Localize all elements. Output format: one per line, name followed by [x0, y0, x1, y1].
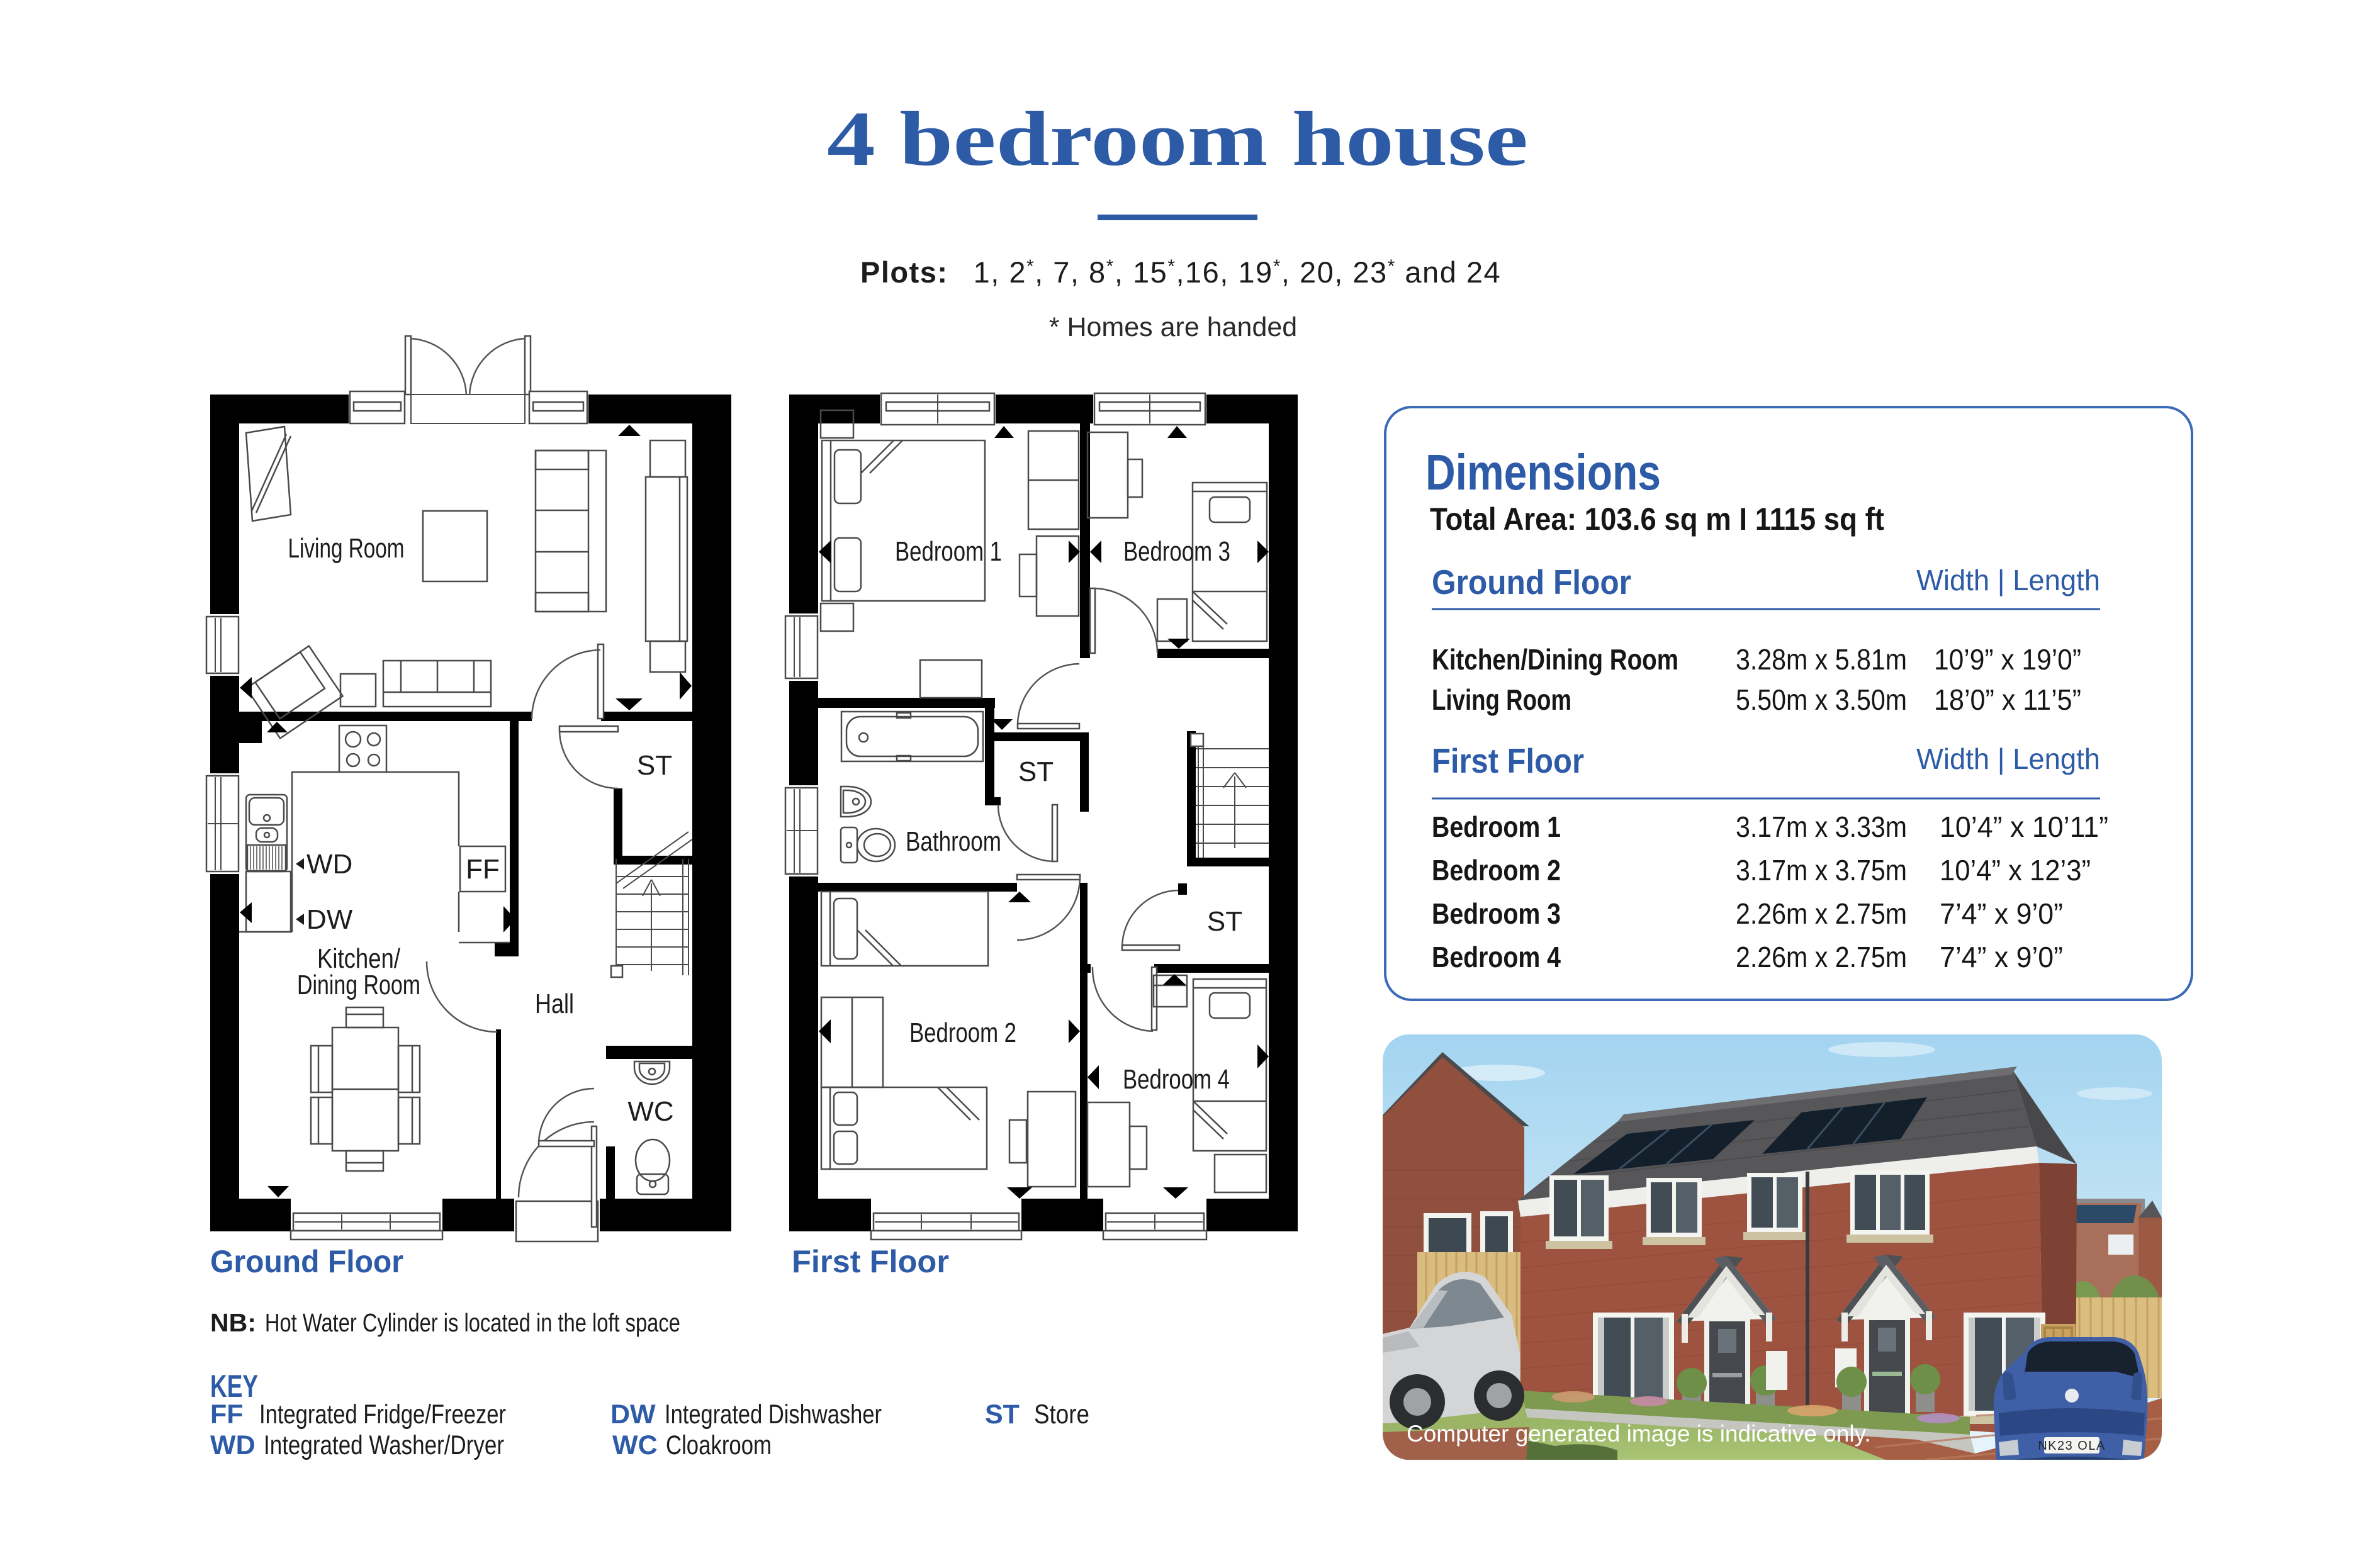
svg-text:First Floor: First Floor	[1432, 741, 1584, 780]
svg-text:ST: ST	[637, 750, 672, 781]
svg-text:Computer generated image is in: Computer generated image is indicative o…	[1407, 1421, 1871, 1447]
svg-text:10’4” x 12’3”: 10’4” x 12’3”	[1940, 854, 2091, 887]
svg-text:Bathroom: Bathroom	[906, 826, 1001, 857]
svg-text:Cloakroom: Cloakroom	[666, 1430, 772, 1460]
svg-text:Bedroom 1: Bedroom 1	[895, 536, 1002, 567]
svg-text:Integrated Dishwasher: Integrated Dishwasher	[665, 1399, 882, 1430]
svg-text:Bedroom 4: Bedroom 4	[1432, 941, 1561, 973]
svg-text:Total Area: 103.6 sq m I 1115: Total Area: 103.6 sq m I 1115 sq ft	[1430, 501, 1884, 537]
svg-text:Bedroom 2: Bedroom 2	[1432, 854, 1561, 887]
svg-text:Ground Floor: Ground Floor	[1432, 563, 1631, 602]
svg-text:ST: ST	[1018, 756, 1054, 787]
svg-text:Bedroom 2: Bedroom 2	[909, 1017, 1016, 1048]
svg-text:* Homes are handed: * Homes are handed	[1049, 312, 1297, 342]
svg-text:2.26m x 2.75m: 2.26m x 2.75m	[1736, 897, 1907, 930]
svg-text:ST: ST	[1207, 906, 1242, 937]
svg-text:18’0” x 11’5”: 18’0” x 11’5”	[1934, 683, 2081, 716]
svg-text:10’9” x 19’0”: 10’9” x 19’0”	[1934, 643, 2081, 676]
svg-text:NB:Hot Water Cylinder is locat: NB:Hot Water Cylinder is located in the …	[210, 1308, 680, 1337]
svg-text:Width | Length: Width | Length	[1916, 742, 2100, 775]
svg-text:5.50m x 3.50m: 5.50m x 3.50m	[1736, 683, 1907, 716]
svg-text:Bedroom 1: Bedroom 1	[1432, 810, 1561, 843]
svg-text:FF: FF	[210, 1399, 244, 1430]
svg-text:Living Room: Living Room	[1432, 683, 1571, 716]
svg-text:Bedroom 4: Bedroom 4	[1123, 1064, 1230, 1095]
svg-text:3.28m x 5.81m: 3.28m x 5.81m	[1736, 643, 1907, 676]
svg-text:Kitchen/Dining Room: Kitchen/Dining Room	[1432, 643, 1678, 676]
svg-text:First Floor: First Floor	[792, 1244, 949, 1279]
svg-text:DW: DW	[306, 904, 353, 935]
svg-text:Dimensions: Dimensions	[1425, 444, 1661, 500]
svg-text:WD: WD	[306, 849, 352, 880]
svg-text:Ground Floor: Ground Floor	[210, 1244, 403, 1279]
svg-text:7’4” x 9’0”: 7’4” x 9’0”	[1940, 897, 2063, 930]
svg-text:Integrated Washer/Dryer: Integrated Washer/Dryer	[264, 1430, 504, 1460]
svg-text:NK23 OLA: NK23 OLA	[2038, 1439, 2106, 1453]
svg-text:WC: WC	[612, 1430, 658, 1460]
svg-text:KEY: KEY	[210, 1369, 258, 1404]
svg-text:7’4” x 9’0”: 7’4” x 9’0”	[1940, 941, 2063, 973]
svg-text:4 bedroom house: 4 bedroom house	[827, 96, 1528, 182]
svg-text:Store: Store	[1034, 1399, 1089, 1430]
svg-text:3.17m x 3.75m: 3.17m x 3.75m	[1736, 854, 1907, 887]
svg-text:Width | Length: Width | Length	[1916, 564, 2100, 596]
svg-text:DW: DW	[610, 1399, 656, 1430]
svg-text:Dining Room: Dining Room	[297, 970, 420, 1000]
svg-text:10’4” x 10’11”: 10’4” x 10’11”	[1940, 810, 2108, 843]
svg-text:Integrated Fridge/Freezer: Integrated Fridge/Freezer	[259, 1399, 506, 1430]
svg-text:WC: WC	[627, 1096, 673, 1127]
svg-text:3.17m x 3.33m: 3.17m x 3.33m	[1736, 810, 1907, 843]
svg-text:FF: FF	[466, 854, 500, 885]
svg-text:Hall: Hall	[535, 988, 574, 1019]
svg-text:WD: WD	[210, 1430, 256, 1460]
svg-text:Living Room: Living Room	[288, 533, 405, 564]
svg-text:Bedroom 3: Bedroom 3	[1123, 536, 1230, 567]
svg-text:ST: ST	[985, 1399, 1020, 1430]
svg-text:Bedroom 3: Bedroom 3	[1432, 897, 1561, 930]
svg-text:2.26m x 2.75m: 2.26m x 2.75m	[1736, 941, 1907, 973]
